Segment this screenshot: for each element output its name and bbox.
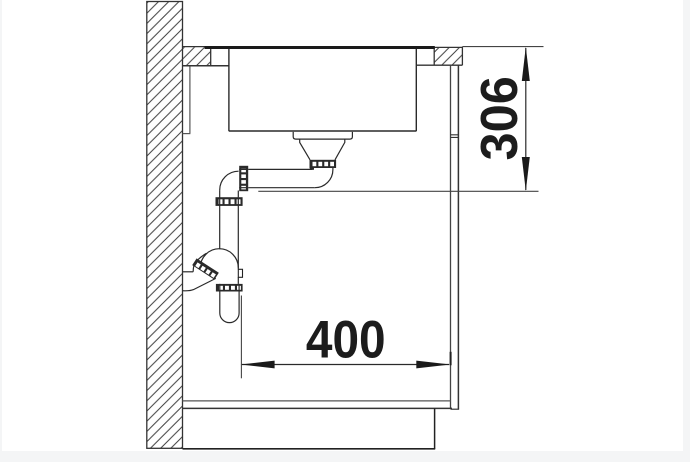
svg-text:306: 306 <box>471 76 529 160</box>
svg-text:400: 400 <box>306 309 386 369</box>
